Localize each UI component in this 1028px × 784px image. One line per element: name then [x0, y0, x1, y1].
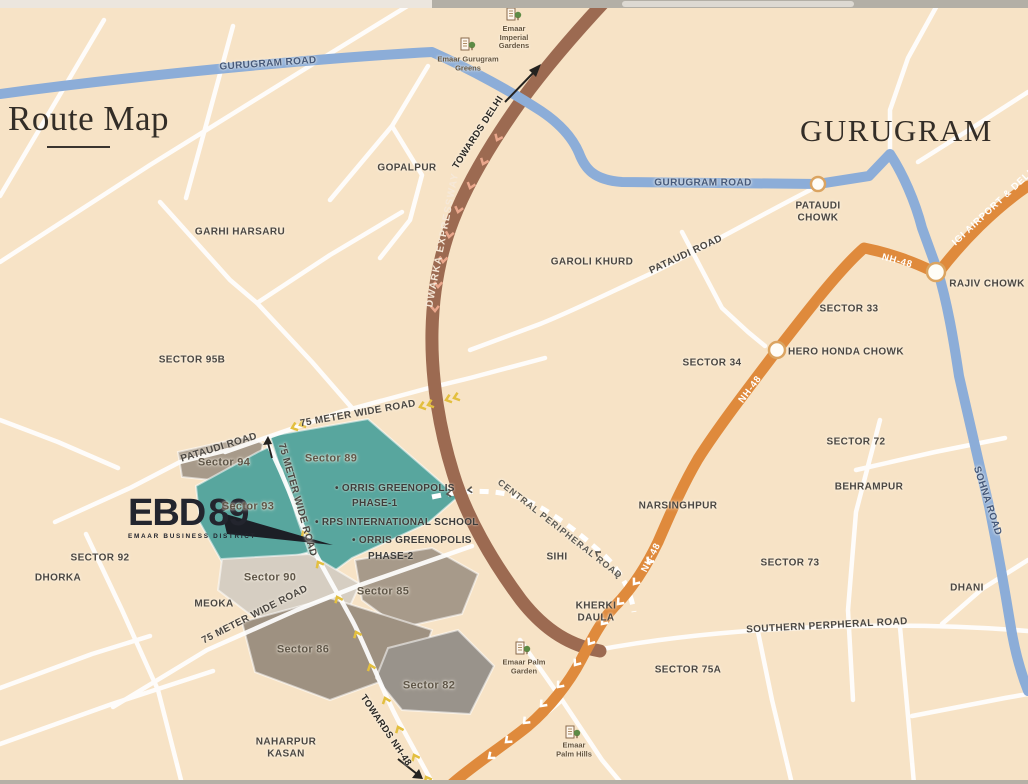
title-underline — [47, 146, 110, 148]
label-meoka: MEOKA — [194, 598, 233, 610]
poi-orris-phase1: • ORRIS GREENOPOLIS — [335, 483, 455, 494]
label-sector-33: SECTOR 33 — [820, 303, 879, 315]
label-sector-92: SECTOR 92 — [71, 552, 130, 564]
top-bar-left-segment — [0, 0, 432, 8]
poi-rps-school: • RPS INTERNATIONAL SCHOOL — [315, 517, 479, 528]
page-title: Route Map — [8, 99, 169, 139]
label-rajiv-chowk: RAJIV CHOWK — [949, 278, 1025, 290]
hero-honda-chowk-node — [769, 342, 785, 358]
building-icon — [461, 38, 475, 50]
label-sihi: SIHI — [546, 551, 567, 563]
poi-orris-phase2: • ORRIS GREENOPOLIS — [352, 535, 472, 546]
label-sector-95b: SECTOR 95B — [159, 354, 226, 366]
label-sector-75a: SECTOR 75A — [655, 664, 722, 676]
pataudi-chowk-node — [811, 177, 825, 191]
city-title: GURUGRAM — [800, 113, 993, 149]
label-sector-90: Sector 90 — [244, 572, 296, 585]
label-naharpur-kasan: NAHARPUR KASAN — [242, 737, 330, 760]
ebd-logo-tagline: EMAAR BUSINESS DISTRICT — [128, 533, 256, 540]
label-behrampur: BEHRAMPUR — [835, 481, 904, 493]
poi-orris-phase2-line2: PHASE-2 — [368, 551, 413, 562]
label-sector-72: SECTOR 72 — [827, 436, 886, 448]
label-sector-73: SECTOR 73 — [761, 557, 820, 569]
building-icon — [507, 8, 521, 20]
label-sector-82: Sector 82 — [403, 680, 455, 693]
label-emaar-gurugram-greens: Emaar Gurugram Greens — [429, 55, 507, 72]
label-kherki-daula: KHERKI DAULA — [568, 601, 624, 624]
rajiv-chowk-node — [927, 263, 945, 281]
label-gurugram-road-east: GURUGRAM ROAD — [654, 177, 751, 189]
bottom-bar — [0, 780, 1028, 784]
label-garhi-harsaru: GARHI HARSARU — [195, 226, 285, 238]
label-emaar-imperial-gardens: Emaar Imperial Gardens — [489, 25, 539, 51]
label-sector-86: Sector 86 — [277, 644, 329, 657]
label-sector-85: Sector 85 — [357, 586, 409, 599]
label-emaar-palm-garden: Emaar Palm Garden — [500, 658, 548, 675]
landmark-icons — [461, 8, 580, 738]
label-pataudi-chowk: PATAUDI CHOWK — [787, 201, 849, 224]
label-garoli-khurd: GAROLI KHURD — [551, 256, 634, 268]
label-sector-93: Sector 93 — [222, 501, 274, 514]
label-gopalpur: GOPALPUR — [377, 162, 436, 174]
poi-orris-phase1-line2: PHASE-1 — [352, 498, 397, 509]
label-sector-89: Sector 89 — [305, 453, 357, 466]
label-sector-34: SECTOR 34 — [683, 357, 742, 369]
label-dhani: DHANI — [950, 582, 984, 594]
top-scrollbar-track — [0, 0, 1028, 8]
label-hero-honda-chowk: HERO HONDA CHOWK — [788, 346, 904, 358]
label-emaar-palm-hills: Emaar Palm Hills — [553, 741, 595, 758]
label-sector-94: Sector 94 — [198, 457, 250, 470]
ebd-logo-word: EBD — [128, 492, 205, 534]
label-dhorka: DHORKA — [35, 572, 81, 584]
top-scrollbar-thumb[interactable] — [622, 1, 854, 7]
label-narsinghpur: NARSINGHPUR — [639, 500, 718, 512]
route-map-page: Route Map GURUGRAM EBD89 EMAAR BUSINESS … — [0, 0, 1028, 784]
